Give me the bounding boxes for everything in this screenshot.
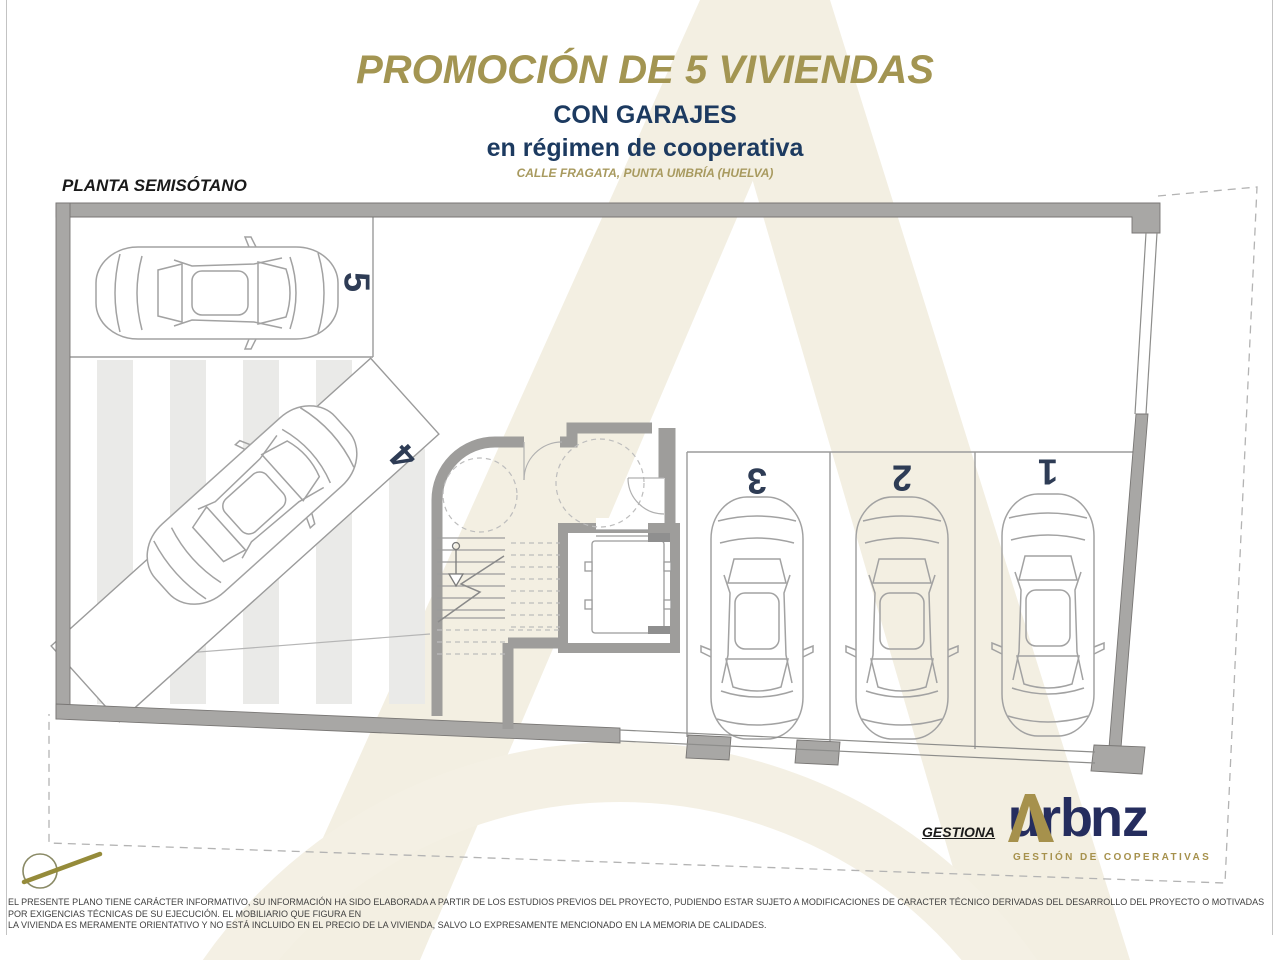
bottom-wall <box>56 704 620 743</box>
gestiona-label: GESTIONA <box>922 824 995 840</box>
brand-text-suffix: nz <box>1090 794 1148 844</box>
stair-elevator-core <box>437 428 675 729</box>
disclaimer-line-2: LA VIVIENDA ES MERAMENTE ORIENTATIVO Y N… <box>8 920 1272 932</box>
space-number: 2 <box>892 458 912 499</box>
space-number: 3 <box>747 461 767 502</box>
garage-pier <box>686 735 731 760</box>
window-line <box>1135 233 1146 414</box>
north-compass-icon <box>23 854 100 888</box>
parking-space-5: 5 <box>70 217 378 357</box>
top-wall <box>56 203 1160 233</box>
header: PROMOCIÓN DE 5 VIVIENDAS CON GARAJES en … <box>10 0 1280 180</box>
plan-label: PLANTA SEMISÓTANO <box>62 176 247 196</box>
right-wall <box>1108 414 1148 760</box>
parking-space-2: 2 <box>846 458 958 740</box>
brand-tagline: GESTIÓN DE COOPERATIVAS <box>1013 852 1211 863</box>
parking-space-3: 3 <box>701 461 813 740</box>
brand-logo: urb nz <box>1008 794 1148 844</box>
brochure-page: 4 5 3 2 1 <box>0 0 1280 960</box>
car-top-view <box>846 497 958 739</box>
page-subtitle: CON GARAJES <box>10 101 1280 130</box>
garage-pier <box>795 740 840 765</box>
space-number: 5 <box>337 272 378 292</box>
window-line <box>1146 233 1157 414</box>
car-top-view <box>992 494 1104 736</box>
page-title: PROMOCIÓN DE 5 VIVIENDAS <box>10 48 1280 93</box>
car-top-view <box>701 497 813 739</box>
door-swings <box>524 442 664 514</box>
disclaimer-line-1: EL PRESENTE PLANO TIENE CARÁCTER INFORMA… <box>8 897 1272 920</box>
left-wall <box>56 203 70 719</box>
openings <box>620 233 1157 763</box>
corner-block <box>1091 745 1145 774</box>
parking-space-1: 1 <box>992 452 1104 737</box>
elevator-car <box>585 530 671 634</box>
car-top-view <box>96 237 338 349</box>
regime-line: en régimen de cooperativa <box>10 134 1280 163</box>
disclaimer: EL PRESENTE PLANO TIENE CARÁCTER INFORMA… <box>8 897 1272 932</box>
space-number: 1 <box>1038 452 1058 493</box>
